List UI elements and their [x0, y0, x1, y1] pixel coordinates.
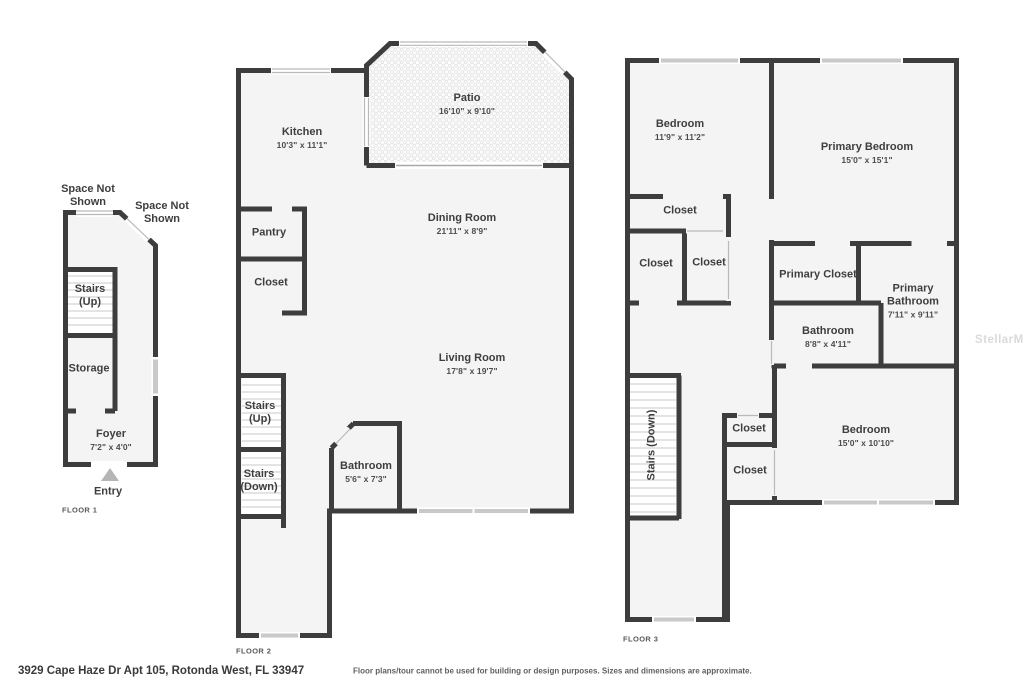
door-gap-pantry: [272, 207, 292, 212]
room-label-dining-room: Dining Room 21'11" x 8'9": [428, 212, 496, 236]
window-f3-top-right: [820, 57, 903, 64]
room-label-living-room: Living Room 17'8" x 19'7": [439, 352, 506, 376]
floor3-tag: FLOOR 3: [623, 635, 658, 644]
door-gap-entry: [91, 461, 127, 469]
room-label-stairs-up-f1: Stairs (Up): [69, 283, 111, 309]
room-label-stairs-down-f3: Stairs (Down): [646, 410, 659, 481]
door-closet-mid: [686, 229, 724, 234]
room-label-bathroom-f2: Bathroom 5'6" x 7'3": [340, 460, 392, 484]
room-label-foyer: Foyer 7'2" x 4'0": [90, 428, 132, 452]
space-not-shown-left-label: Space Not Shown: [56, 183, 120, 209]
door-closet-hall: [738, 413, 759, 418]
door-gap-storage: [76, 408, 105, 414]
room-label-stairs-up-f2: Stairs (Up): [239, 400, 281, 426]
entry-arrow-icon: [101, 468, 119, 481]
door-gap-closet-f2: [241, 311, 281, 316]
room-label-bedroom2: Bedroom 15'0" x 10'10": [838, 424, 894, 448]
room-label-primary-closet: Primary Closet: [779, 269, 857, 282]
door-bathroom-f3: [769, 341, 774, 365]
window-patio-top: [399, 40, 528, 47]
property-address: 3929 Cape Haze Dr Apt 105, Rotonda West,…: [18, 665, 304, 677]
room-label-kitchen: Kitchen 10'3" x 11'1": [277, 126, 328, 150]
window-patio-left: [363, 97, 371, 147]
window-corridor-f2: [259, 632, 300, 639]
door-closet-bed: [772, 449, 777, 495]
room-label-closet-f2: Closet: [254, 277, 288, 290]
entry-label: Entry: [94, 486, 122, 499]
window-bedroom2: [822, 499, 935, 506]
mls-watermark: StellarMLS: [975, 334, 1024, 346]
room-label-bedroom1: Bedroom 11'9" x 11'2": [655, 118, 705, 142]
floorplan-page: Space Not Shown Space Not Shown Stairs (…: [0, 0, 1024, 682]
room-label-primary-bathroom: Primary Bathroom 7'11" x 9'11": [874, 283, 952, 320]
room-label-closet-left: Closet: [639, 258, 673, 271]
window-f1-right: [152, 357, 160, 396]
door-closet-side: [726, 239, 731, 301]
window-f3-top-left: [659, 57, 740, 64]
room-label-pantry: Pantry: [252, 227, 286, 240]
slider-living-room: [417, 508, 530, 515]
window-kitchen-top: [271, 67, 331, 75]
room-label-stairs-down-f2: Stairs (Down): [235, 468, 283, 494]
space-not-shown-right-label: Space Not Shown: [130, 200, 194, 226]
room-label-storage: Storage: [69, 363, 110, 376]
slider-patio: [395, 162, 543, 169]
floor1-tag: FLOOR 1: [62, 506, 97, 515]
room-label-closet-top: Closet: [663, 205, 697, 218]
floor2-tag: FLOOR 2: [236, 647, 271, 656]
room-label-bathroom-f3: Bathroom 8'8" x 4'11": [802, 325, 854, 349]
floorplan-drawing: [0, 0, 1024, 682]
room-label-patio: Patio 16'10" x 9'10": [439, 92, 495, 116]
window-corridor-f3: [652, 616, 696, 623]
room-label-closet-mid: Closet: [692, 257, 726, 270]
disclaimer-text: Floor plans/tour cannot be used for buil…: [353, 667, 752, 676]
room-label-closet-hall: Closet: [732, 423, 766, 436]
hall-closet-walls: [725, 413, 775, 620]
window-f1-top: [76, 208, 113, 217]
room-label-primary-bedroom: Primary Bedroom 15'0" x 15'1": [821, 141, 913, 165]
room-label-closet-bed: Closet: [733, 465, 767, 478]
